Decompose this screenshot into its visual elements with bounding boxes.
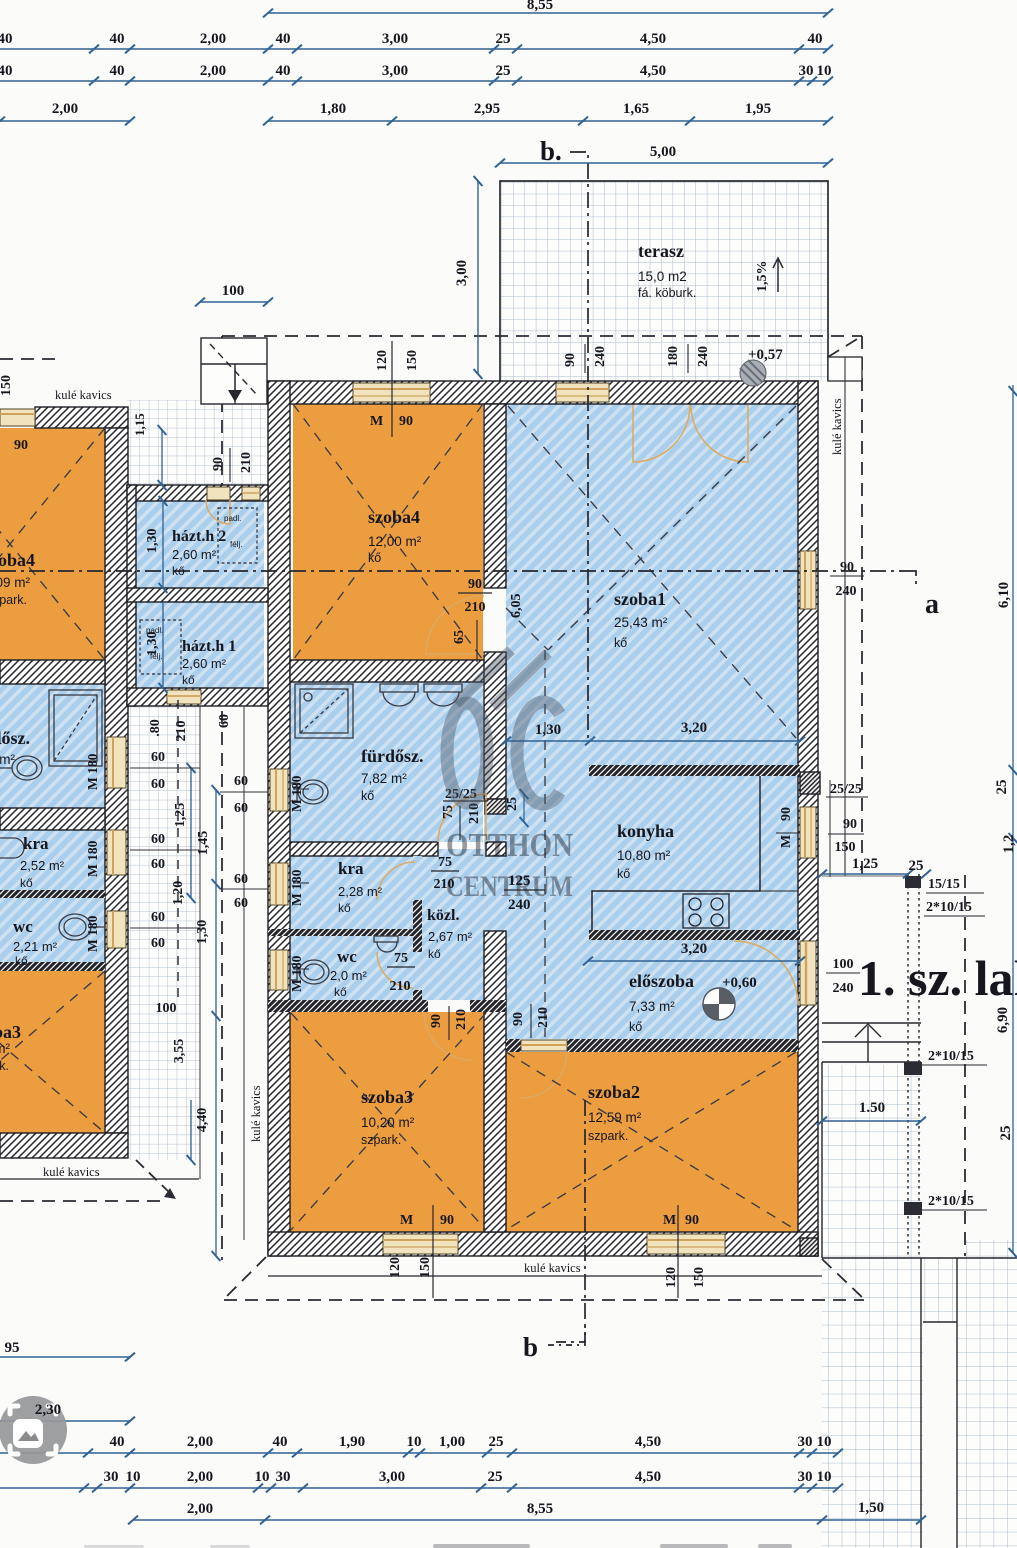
svg-text:1. sz. lakás: 1. sz. lakás <box>858 950 1017 1006</box>
svg-text:90: 90 <box>563 353 578 367</box>
svg-text:4,50: 4,50 <box>640 63 666 79</box>
svg-text:1.50: 1.50 <box>859 1100 885 1116</box>
svg-text:30: 30 <box>798 1469 813 1485</box>
svg-text:1,30: 1,30 <box>195 920 210 945</box>
svg-text:2,28 m²: 2,28 m² <box>338 884 383 899</box>
svg-text:kő: kő <box>617 867 630 881</box>
svg-text:szoba4: szoba4 <box>0 550 35 570</box>
svg-text:kra: kra <box>23 834 49 853</box>
svg-text:120: 120 <box>388 1257 403 1278</box>
svg-text:240: 240 <box>836 584 857 599</box>
svg-text:m²: m² <box>0 1041 10 1056</box>
svg-text:60: 60 <box>234 896 248 911</box>
svg-text:6,05: 6,05 <box>509 594 524 619</box>
svg-text:szpark.: szpark. <box>361 1133 401 1147</box>
svg-text:kő: kő <box>182 673 195 687</box>
svg-text:szoba3: szoba3 <box>361 1087 413 1107</box>
svg-text:M: M <box>370 414 383 429</box>
svg-text:1,30: 1,30 <box>145 529 160 554</box>
svg-text:előszoba: előszoba <box>629 971 694 991</box>
svg-text:30: 30 <box>104 1469 119 1485</box>
svg-text:2*10/15: 2*10/15 <box>928 1049 974 1064</box>
svg-text:kő: kő <box>428 947 441 961</box>
svg-text:konyha: konyha <box>617 821 674 841</box>
svg-text:1,80: 1,80 <box>320 101 346 117</box>
svg-text:25,43 m²: 25,43 m² <box>614 615 668 630</box>
svg-text:3,20: 3,20 <box>681 720 707 736</box>
svg-text:2,30: 2,30 <box>35 1402 61 1418</box>
svg-text:kő: kő <box>172 564 185 578</box>
svg-text:2,60 m²: 2,60 m² <box>182 656 227 671</box>
svg-text:60: 60 <box>217 714 232 728</box>
svg-text:1,90: 1,90 <box>339 1434 365 1450</box>
svg-text:a: a <box>925 589 939 620</box>
svg-text:90: 90 <box>685 1213 699 1228</box>
svg-text:M 180: M 180 <box>85 915 100 952</box>
svg-text:2,0 m²: 2,0 m² <box>330 968 368 983</box>
svg-text:30: 30 <box>798 1434 813 1450</box>
svg-text:házt.h 2: házt.h 2 <box>172 528 226 545</box>
svg-text:40: 40 <box>808 31 823 47</box>
svg-text:60: 60 <box>234 872 248 887</box>
svg-text:fá. köburk.: fá. köburk. <box>638 286 696 300</box>
svg-text:25: 25 <box>994 780 1010 795</box>
svg-text:szpark.: szpark. <box>588 1129 628 1143</box>
svg-text:kő: kő <box>368 551 381 565</box>
svg-text:2,60 m²: 2,60 m² <box>172 547 217 562</box>
svg-text:25: 25 <box>505 797 520 811</box>
svg-text:kő: kő <box>361 789 374 803</box>
svg-text:10: 10 <box>126 1469 141 1485</box>
svg-text:+0,60: +0,60 <box>722 975 757 991</box>
svg-text:közl.: közl. <box>427 907 459 924</box>
svg-text:25: 25 <box>496 63 511 79</box>
svg-text:szpark.: szpark. <box>0 593 27 607</box>
svg-text:240: 240 <box>696 346 711 367</box>
svg-text:3,00: 3,00 <box>454 260 470 286</box>
svg-text:4,50: 4,50 <box>635 1469 661 1485</box>
svg-text:7,33 m²: 7,33 m² <box>629 999 675 1014</box>
svg-text:1,5%: 1,5% <box>755 261 770 293</box>
svg-text:90: 90 <box>511 1012 526 1026</box>
svg-text:25: 25 <box>489 1434 504 1450</box>
svg-text:25/25: 25/25 <box>830 782 862 797</box>
svg-text:1,95: 1,95 <box>745 101 771 117</box>
svg-text:40: 40 <box>0 63 13 79</box>
svg-text:b: b <box>523 1332 538 1362</box>
svg-text:CENTRUM: CENTRUM <box>446 870 573 903</box>
svg-text:60: 60 <box>151 777 165 792</box>
svg-text:90: 90 <box>840 560 854 575</box>
svg-text:7,82 m²: 7,82 m² <box>361 771 407 786</box>
svg-text:30: 30 <box>276 1469 291 1485</box>
svg-text:90: 90 <box>843 817 857 832</box>
svg-text:M: M <box>779 835 794 848</box>
svg-text:30: 30 <box>799 63 814 79</box>
svg-text:40: 40 <box>276 31 291 47</box>
svg-text:OTTHON: OTTHON <box>446 827 573 864</box>
svg-text:10,80 m²: 10,80 m² <box>617 848 671 863</box>
svg-text:150: 150 <box>405 350 420 371</box>
svg-text:3,00: 3,00 <box>379 1469 405 1485</box>
svg-text:M: M <box>663 1213 676 1228</box>
svg-text:90: 90 <box>779 807 794 821</box>
svg-text:rk.: rk. <box>0 1059 9 1073</box>
svg-text:kő: kő <box>338 901 351 915</box>
svg-text:60: 60 <box>234 801 248 816</box>
svg-text:1,25: 1,25 <box>852 856 878 872</box>
svg-text:1,30: 1,30 <box>145 632 160 657</box>
svg-text:10: 10 <box>817 63 832 79</box>
svg-text:2,00: 2,00 <box>52 101 78 117</box>
svg-text:10,20 m²: 10,20 m² <box>361 1115 415 1130</box>
svg-text:25: 25 <box>909 858 924 874</box>
svg-text:40: 40 <box>110 1434 125 1450</box>
svg-text:M 180: M 180 <box>289 775 304 812</box>
svg-text:3,00: 3,00 <box>382 63 408 79</box>
svg-text:2*10/15: 2*10/15 <box>928 1194 974 1209</box>
svg-text:kulé kavics: kulé kavics <box>55 388 112 402</box>
svg-text:10: 10 <box>817 1434 832 1450</box>
svg-text:fürdősz.: fürdősz. <box>0 728 30 748</box>
svg-text:2,00: 2,00 <box>187 1469 213 1485</box>
svg-text:40: 40 <box>110 31 125 47</box>
svg-text:13,09 m²: 13,09 m² <box>0 575 30 590</box>
svg-text:100: 100 <box>222 283 245 299</box>
svg-text:5,00: 5,00 <box>650 144 676 160</box>
svg-text:25: 25 <box>998 1126 1014 1141</box>
svg-text:kulé kavics: kulé kavics <box>43 1165 100 1179</box>
svg-text:2,00: 2,00 <box>200 63 226 79</box>
svg-text:1,15: 1,15 <box>132 413 147 436</box>
svg-text:2,00: 2,00 <box>187 1501 213 1517</box>
svg-text:10: 10 <box>817 1469 832 1485</box>
svg-text:kő: kő <box>629 1020 642 1034</box>
svg-text:8,55: 8,55 <box>527 1501 553 1517</box>
svg-text:90: 90 <box>468 577 482 592</box>
svg-text:60: 60 <box>151 910 165 925</box>
svg-text:75: 75 <box>441 805 456 819</box>
svg-text:félj.: félj. <box>230 540 242 549</box>
svg-text:1,00: 1,00 <box>439 1434 465 1450</box>
svg-text:3,20: 3,20 <box>681 941 707 957</box>
svg-text:szoba3: szoba3 <box>0 1022 21 1042</box>
svg-text:wc: wc <box>337 947 357 966</box>
svg-text:120: 120 <box>664 1267 679 1288</box>
svg-text:210: 210 <box>239 452 254 473</box>
svg-text:180: 180 <box>666 346 681 367</box>
svg-text:90: 90 <box>429 1014 444 1028</box>
svg-text:60: 60 <box>151 857 165 872</box>
svg-text:szoba2: szoba2 <box>588 1082 640 1102</box>
svg-text:150: 150 <box>418 1257 433 1278</box>
svg-text:4,40: 4,40 <box>195 1108 210 1133</box>
svg-text:100: 100 <box>156 1001 177 1016</box>
svg-text:40: 40 <box>276 63 291 79</box>
svg-text:210: 210 <box>390 979 411 994</box>
svg-text:kulé kavics: kulé kavics <box>524 1261 581 1275</box>
svg-text:1,2: 1,2 <box>1001 835 1017 854</box>
svg-text:12,59 m²: 12,59 m² <box>588 1110 642 1125</box>
svg-text:150: 150 <box>692 1267 707 1288</box>
svg-text:fürdősz.: fürdősz. <box>361 746 424 766</box>
svg-text:kő: kő <box>334 985 347 999</box>
svg-text:M 180: M 180 <box>289 869 304 906</box>
svg-text:25: 25 <box>496 31 511 47</box>
svg-text:kő: kő <box>15 954 28 968</box>
svg-text:4,50: 4,50 <box>640 31 666 47</box>
svg-text:240: 240 <box>593 346 608 367</box>
svg-text:90: 90 <box>211 457 226 471</box>
svg-text:12,00 m²: 12,00 m² <box>368 534 422 549</box>
svg-text:2,52 m²: 2,52 m² <box>20 858 65 873</box>
svg-text:10: 10 <box>407 1434 422 1450</box>
svg-text:65: 65 <box>452 630 467 644</box>
svg-text:kulé kavics: kulé kavics <box>830 398 844 455</box>
svg-text:40: 40 <box>0 31 13 47</box>
svg-text:210: 210 <box>174 721 189 742</box>
svg-text:2,67 m²: 2,67 m² <box>428 929 473 944</box>
svg-text:60: 60 <box>151 750 165 765</box>
svg-text:210: 210 <box>536 1007 551 1028</box>
svg-text:150: 150 <box>0 375 14 396</box>
svg-text:75: 75 <box>394 951 408 966</box>
svg-text:60: 60 <box>151 832 165 847</box>
svg-text:60: 60 <box>151 936 165 951</box>
svg-text:15/15: 15/15 <box>928 877 960 892</box>
svg-text:6,10: 6,10 <box>996 582 1012 608</box>
svg-text:4,50: 4,50 <box>635 1434 661 1450</box>
svg-text:90: 90 <box>14 438 28 453</box>
svg-text:padl.: padl. <box>224 514 241 523</box>
svg-text:terasz: terasz <box>638 241 684 261</box>
svg-text:8,55: 8,55 <box>527 0 553 13</box>
svg-text:2,00: 2,00 <box>200 31 226 47</box>
svg-text:6,90: 6,90 <box>995 1007 1011 1033</box>
svg-text:M 180: M 180 <box>85 840 100 877</box>
svg-text:1,45: 1,45 <box>196 831 211 856</box>
svg-text:210: 210 <box>454 1009 469 1030</box>
svg-text:2,21 m²: 2,21 m² <box>13 939 58 954</box>
svg-text:40: 40 <box>273 1434 288 1450</box>
svg-text:40: 40 <box>110 63 125 79</box>
svg-text:240: 240 <box>833 981 854 996</box>
svg-text:2,95: 2,95 <box>474 101 500 117</box>
svg-text:90: 90 <box>399 414 413 429</box>
svg-text:90: 90 <box>440 1213 454 1228</box>
svg-text:150: 150 <box>835 840 856 855</box>
svg-text:1,50: 1,50 <box>858 1500 884 1516</box>
svg-text:10: 10 <box>255 1469 270 1485</box>
svg-text:3,55: 3,55 <box>172 1039 187 1064</box>
svg-text:15,0 m2: 15,0 m2 <box>638 269 687 284</box>
svg-text:kő: kő <box>20 876 33 890</box>
svg-text:1,20: 1,20 <box>171 881 186 906</box>
svg-text:1,25: 1,25 <box>173 803 188 828</box>
svg-text:2*10/15: 2*10/15 <box>926 900 972 915</box>
svg-text:.80: .80 <box>148 719 163 737</box>
svg-text:kulé kavics: kulé kavics <box>249 1085 263 1142</box>
svg-text:1,65: 1,65 <box>623 101 649 117</box>
svg-text:95: 95 <box>5 1340 20 1356</box>
svg-text:szoba1: szoba1 <box>614 589 666 609</box>
svg-text:120: 120 <box>375 350 390 371</box>
svg-text:b.: b. <box>540 136 562 166</box>
svg-text:kra: kra <box>338 859 364 878</box>
svg-text:60: 60 <box>234 774 248 789</box>
svg-text:1,30: 1,30 <box>535 722 561 738</box>
svg-text:M 180: M 180 <box>289 955 304 992</box>
svg-text:kő: kő <box>614 636 627 650</box>
svg-text:3,00: 3,00 <box>382 31 408 47</box>
svg-text:házt.h 1: házt.h 1 <box>182 638 236 655</box>
svg-text:25: 25 <box>488 1469 503 1485</box>
svg-text:2,00: 2,00 <box>187 1434 213 1450</box>
svg-text:M 180: M 180 <box>85 753 100 790</box>
svg-text:100: 100 <box>833 957 854 972</box>
svg-text:szoba4: szoba4 <box>368 507 420 527</box>
svg-text:M: M <box>400 1213 413 1228</box>
svg-text:7,82 m²: 7,82 m² <box>0 752 15 767</box>
svg-text:wc: wc <box>13 917 33 936</box>
svg-text:210: 210 <box>465 600 486 615</box>
